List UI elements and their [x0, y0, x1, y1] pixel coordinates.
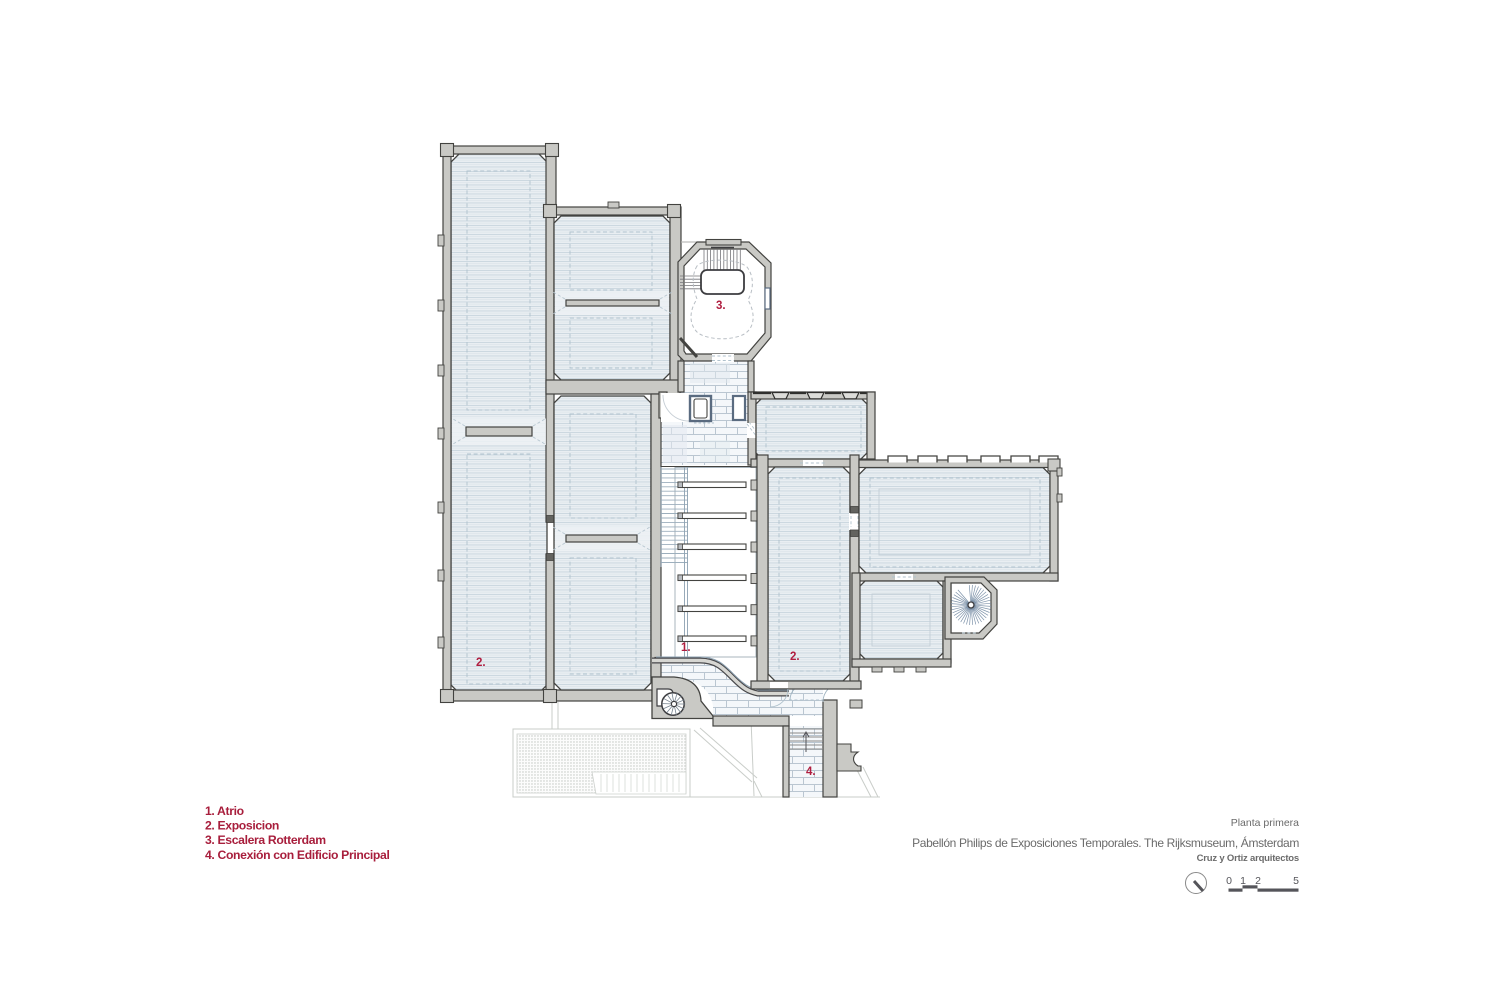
svg-text:2.: 2. [476, 657, 486, 669]
svg-text:2. Exposicion: 2. Exposicion [205, 819, 279, 833]
svg-text:3.: 3. [716, 300, 726, 312]
svg-text:3. Escalera Rotterdam: 3. Escalera Rotterdam [205, 833, 326, 847]
svg-text:1.: 1. [681, 642, 691, 654]
svg-text:Pabellón Philips de Exposicion: Pabellón Philips de Exposiciones Tempora… [912, 835, 1299, 850]
svg-text:5: 5 [1293, 875, 1299, 887]
svg-text:2.: 2. [790, 651, 800, 663]
svg-text:4. Conexión con Edificio Princ: 4. Conexión con Edificio Principal [205, 848, 390, 862]
svg-text:1. Atrio: 1. Atrio [205, 804, 244, 818]
svg-text:0: 0 [1226, 875, 1232, 887]
svg-text:2: 2 [1255, 875, 1261, 887]
svg-text:1: 1 [1240, 875, 1246, 887]
svg-text:Cruz y Ortiz arquitectos: Cruz y Ortiz arquitectos [1197, 853, 1299, 864]
svg-text:Planta primera: Planta primera [1231, 817, 1299, 829]
svg-text:4.: 4. [806, 766, 816, 778]
